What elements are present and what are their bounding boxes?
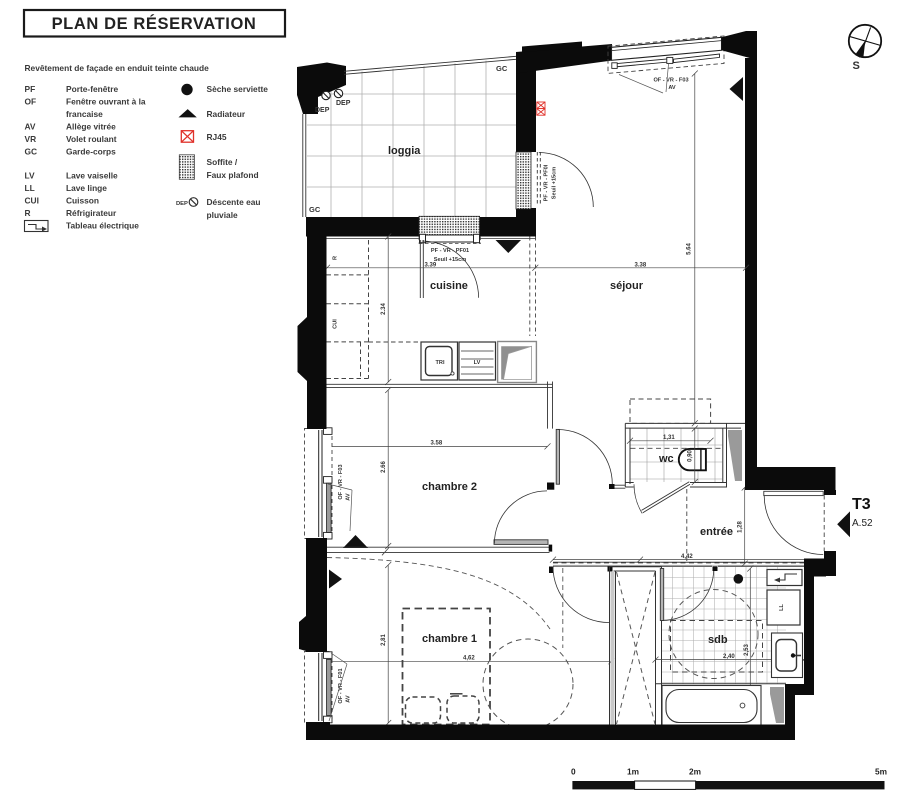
svg-text:DEP: DEP <box>315 107 330 114</box>
svg-text:Soffite /: Soffite / <box>207 157 238 167</box>
svg-text:Lave linge: Lave linge <box>66 183 107 193</box>
svg-text:R: R <box>333 256 339 260</box>
svg-text:3.38: 3.38 <box>635 263 647 269</box>
svg-text:AV: AV <box>346 695 352 703</box>
svg-text:Lave vaiselle: Lave vaiselle <box>66 171 118 181</box>
svg-text:entrée: entrée <box>700 526 733 538</box>
svg-text:séjour: séjour <box>610 280 644 292</box>
svg-text:Porte-fenêtre: Porte-fenêtre <box>66 84 118 94</box>
svg-text:OF - VR - F01: OF - VR - F01 <box>338 668 344 703</box>
svg-text:R: R <box>25 208 31 218</box>
svg-text:LL: LL <box>25 183 35 193</box>
svg-text:Tableau électrique: Tableau électrique <box>66 221 139 231</box>
svg-text:PLAN DE RÉSERVATION: PLAN DE RÉSERVATION <box>52 14 257 33</box>
svg-text:TRI: TRI <box>435 360 444 366</box>
svg-text:AV: AV <box>346 493 352 501</box>
svg-text:cuisine: cuisine <box>430 280 468 292</box>
svg-text:Seuil +15cm: Seuil +15cm <box>434 257 467 263</box>
svg-text:CUI: CUI <box>333 319 339 329</box>
svg-text:GC: GC <box>25 147 38 157</box>
svg-text:Fenêtre ouvrant à la: Fenêtre ouvrant à la <box>66 97 146 107</box>
svg-text:sdb: sdb <box>708 634 728 646</box>
svg-text:Allège vitrée: Allège vitrée <box>66 122 116 132</box>
svg-text:2m: 2m <box>689 767 701 777</box>
svg-text:Seuil +15cm: Seuil +15cm <box>552 167 558 200</box>
svg-text:Volet roulant: Volet roulant <box>66 134 117 144</box>
svg-text:loggia: loggia <box>388 145 421 157</box>
svg-text:OF - VR - F03: OF - VR - F03 <box>338 464 344 499</box>
svg-text:4,62: 4,62 <box>463 656 475 662</box>
svg-text:Réfrigirateur: Réfrigirateur <box>66 208 117 218</box>
svg-text:RJ45: RJ45 <box>207 132 227 142</box>
svg-text:DEP: DEP <box>336 100 351 107</box>
svg-text:chambre 1: chambre 1 <box>422 633 477 645</box>
svg-text:GC: GC <box>309 205 321 214</box>
svg-text:LV: LV <box>474 360 481 366</box>
svg-text:wc: wc <box>658 453 674 465</box>
svg-text:OF: OF <box>25 97 37 107</box>
svg-text:Cuisson: Cuisson <box>66 196 99 206</box>
svg-text:3.58: 3.58 <box>431 441 443 447</box>
svg-text:Radiateur: Radiateur <box>207 109 246 119</box>
svg-text:PF: PF <box>25 84 36 94</box>
svg-text:francaise: francaise <box>66 109 103 119</box>
svg-text:Faux plafond: Faux plafond <box>207 170 259 180</box>
svg-text:PF - VR - PF0I: PF - VR - PF0I <box>544 164 550 201</box>
svg-text:Revêtement de façade en enduit: Revêtement de façade en enduit teinte ch… <box>25 63 210 73</box>
svg-text:2,53: 2,53 <box>744 644 750 656</box>
svg-text:1m: 1m <box>627 767 639 777</box>
svg-text:chambre 2: chambre 2 <box>422 481 477 493</box>
svg-text:T3: T3 <box>852 496 871 513</box>
svg-text:AV: AV <box>25 122 36 132</box>
svg-text:PF - VR - PF01: PF - VR - PF01 <box>431 248 469 254</box>
svg-text:2.66: 2.66 <box>381 461 387 473</box>
svg-text:AV: AV <box>668 85 676 91</box>
svg-text:2.34: 2.34 <box>381 303 387 315</box>
svg-text:0,90: 0,90 <box>688 450 694 462</box>
svg-text:CUI: CUI <box>25 196 39 206</box>
svg-text:5.64: 5.64 <box>687 243 693 255</box>
svg-text:VR: VR <box>25 134 37 144</box>
svg-text:S: S <box>853 60 860 72</box>
svg-text:Sèche serviette: Sèche serviette <box>207 84 269 94</box>
svg-text:DEP: DEP <box>176 201 188 207</box>
svg-text:Déscente eau: Déscente eau <box>207 197 261 207</box>
svg-text:0: 0 <box>571 767 576 777</box>
svg-text:3.39: 3.39 <box>425 263 437 269</box>
svg-text:1,31: 1,31 <box>663 435 675 441</box>
svg-text:LV: LV <box>25 171 35 181</box>
svg-text:1,28: 1,28 <box>738 521 744 533</box>
svg-text:2,81: 2,81 <box>381 634 387 646</box>
svg-text:A.52: A.52 <box>852 518 873 529</box>
svg-text:5m: 5m <box>875 767 887 777</box>
svg-text:LL: LL <box>779 604 785 611</box>
svg-text:GC: GC <box>496 64 508 73</box>
svg-text:2,40: 2,40 <box>723 654 735 660</box>
svg-text:pluviale: pluviale <box>207 210 239 220</box>
svg-text:Garde-corps: Garde-corps <box>66 147 116 157</box>
svg-text:OF - VR - F03: OF - VR - F03 <box>653 78 688 84</box>
